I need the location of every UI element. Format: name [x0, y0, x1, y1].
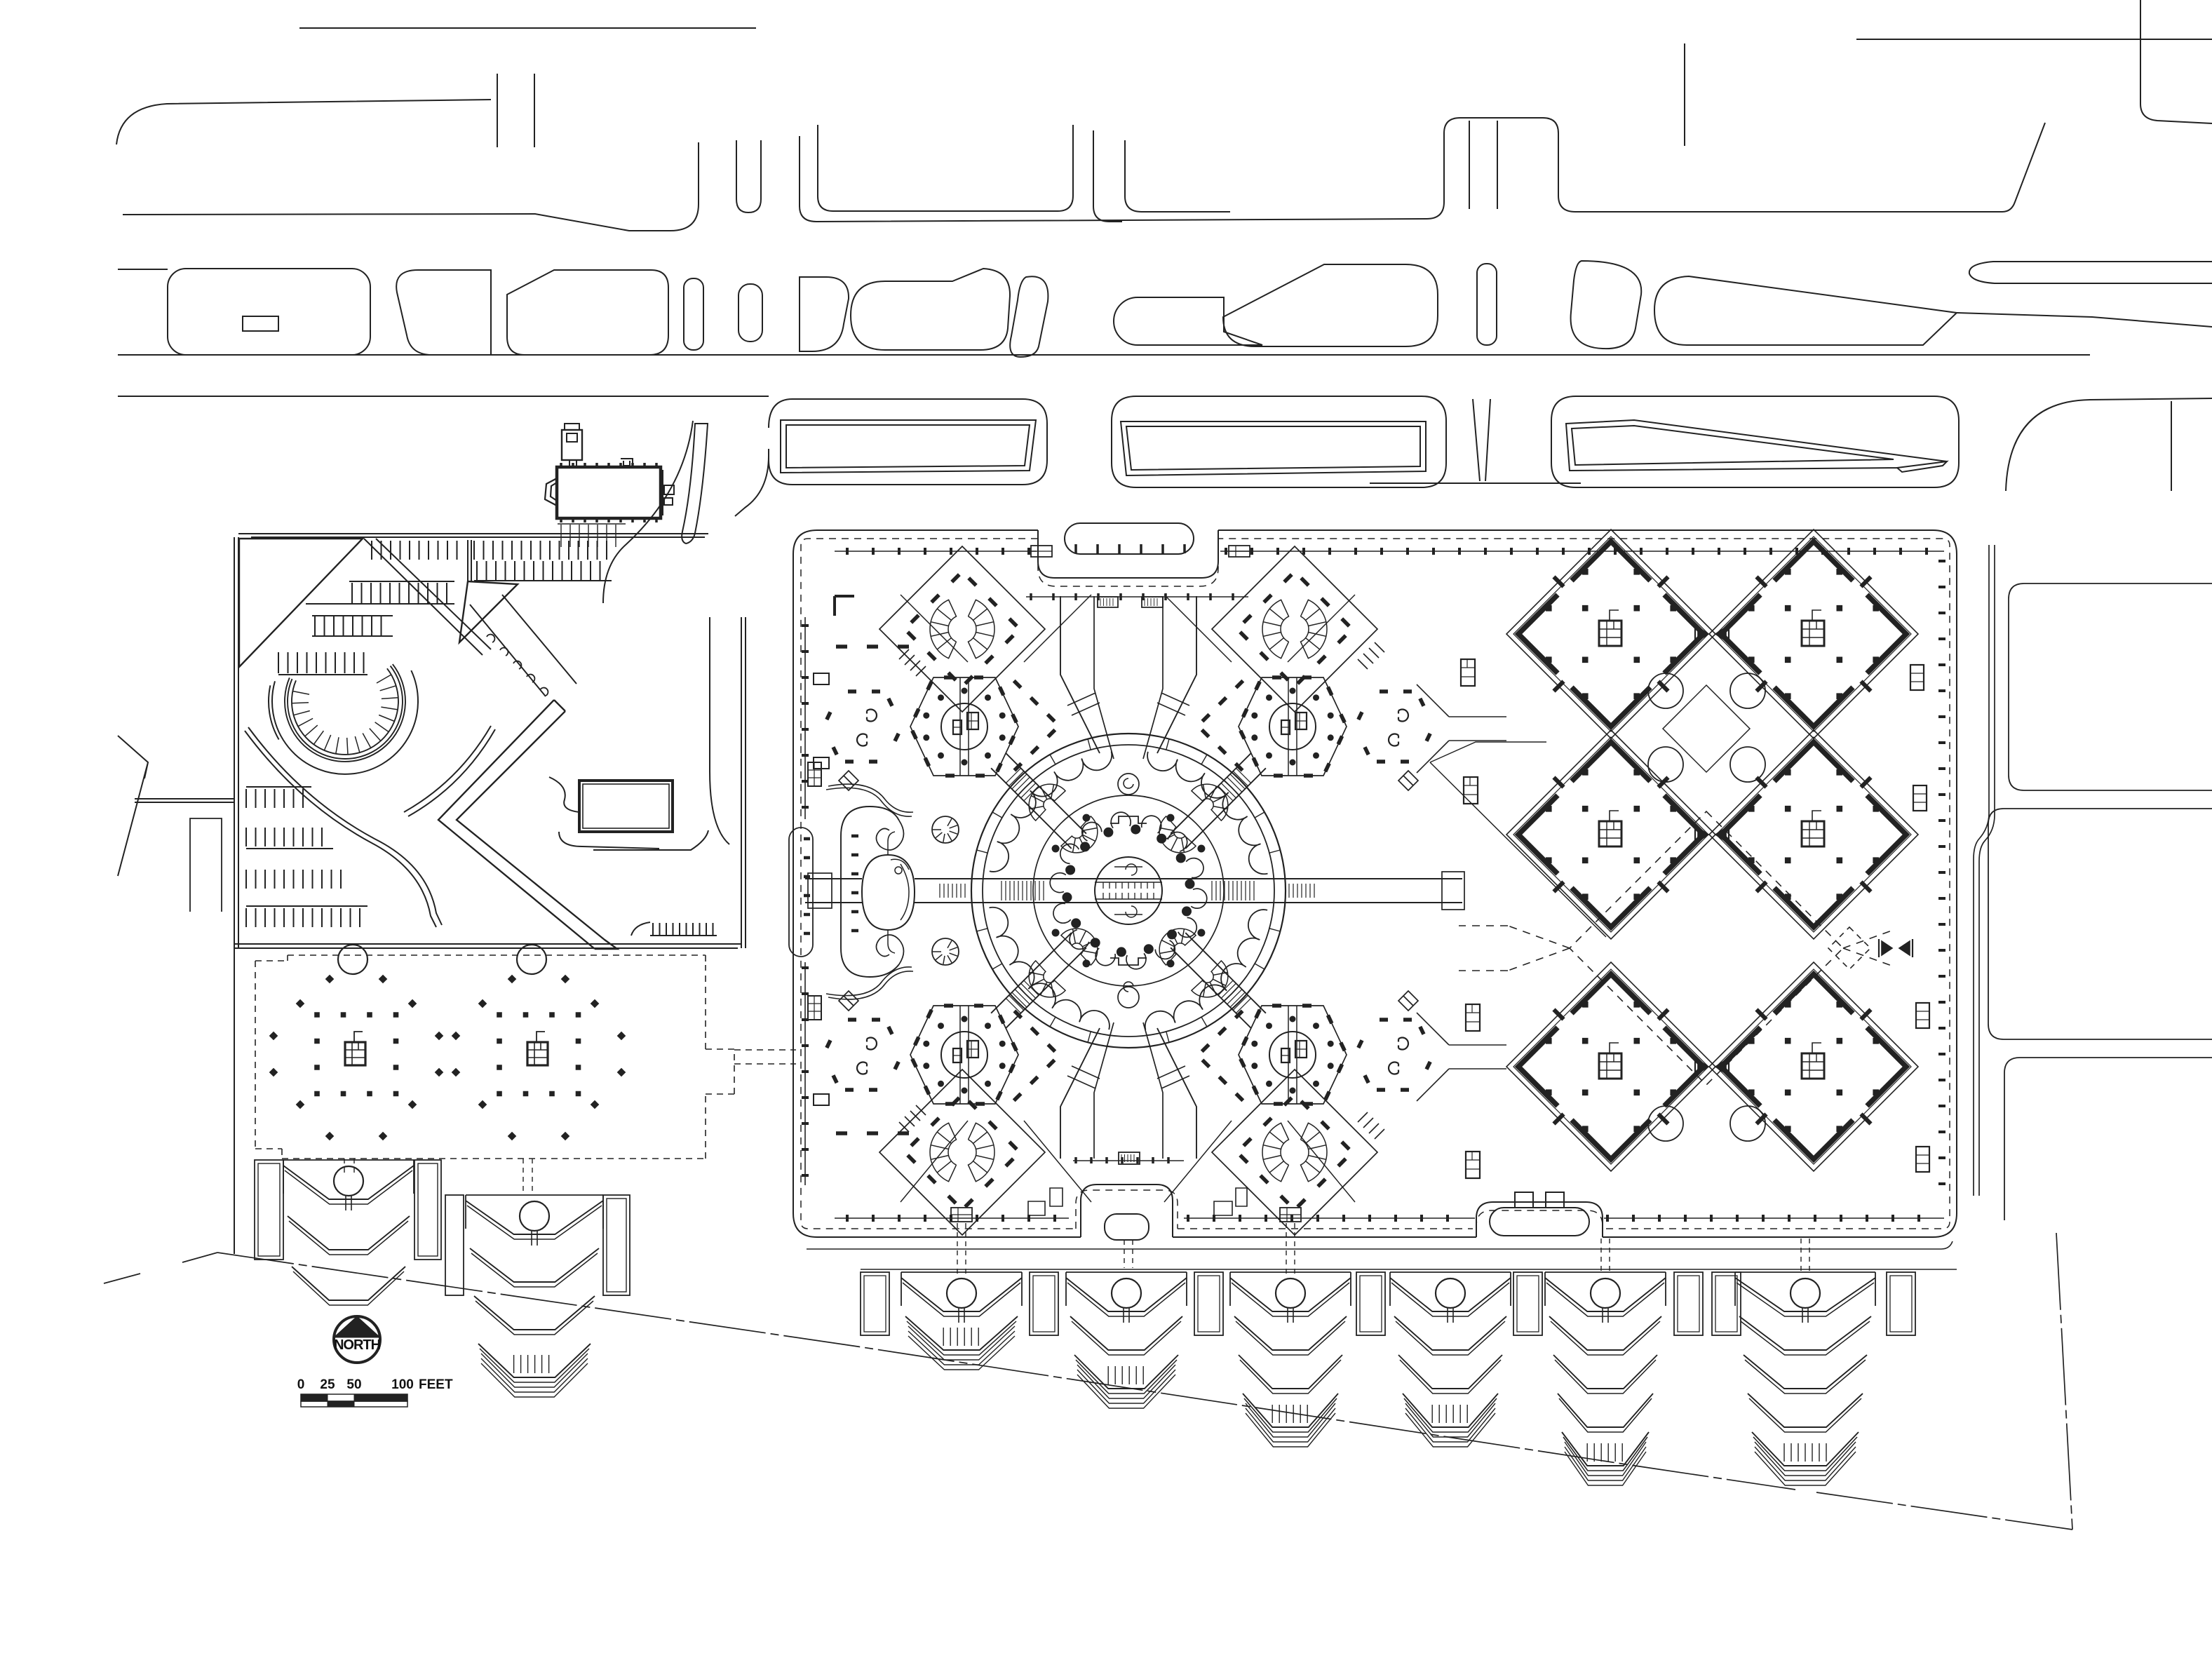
svg-text:50: 50 — [346, 1377, 361, 1392]
svg-text:25: 25 — [320, 1377, 335, 1392]
svg-text:100: 100 — [391, 1377, 414, 1392]
svg-text:0: 0 — [297, 1377, 305, 1392]
svg-text:NORTH: NORTH — [334, 1337, 381, 1353]
svg-text:FEET: FEET — [419, 1377, 453, 1392]
